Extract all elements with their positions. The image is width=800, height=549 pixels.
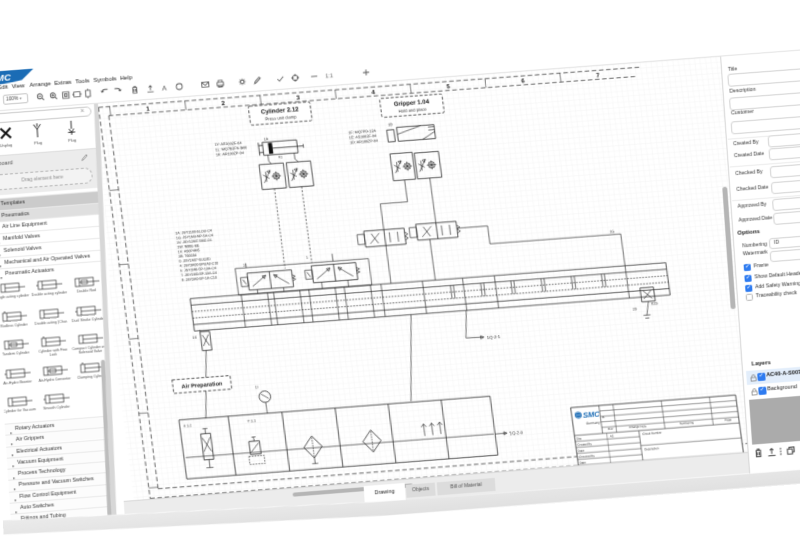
svg-text:Rev: Rev (608, 427, 614, 431)
svg-text:Site: Site (576, 437, 582, 441)
svg-text:A: A (162, 85, 167, 92)
svg-text:Y 2.1: Y 2.1 (247, 419, 256, 424)
svg-text:X1: X1 (278, 155, 283, 159)
svg-text:3 1.2: 3 1.2 (183, 424, 192, 429)
svg-text:1Q-2-0: 1Q-2-0 (509, 430, 524, 436)
svg-text:1G: 1G (610, 229, 616, 233)
svg-text:X2S: X2S (651, 301, 659, 306)
svg-text:SMC: SMC (582, 410, 600, 420)
svg-text:1Q-2-1: 1Q-2-1 (487, 334, 502, 340)
svg-text:1I: 1I (255, 385, 259, 389)
svg-text:2: 2 (243, 263, 246, 267)
svg-text:Date: Date (578, 448, 585, 452)
svg-text:1: 1 (306, 256, 309, 260)
svg-text:1:1: 1:1 (325, 73, 333, 80)
svg-text:Page: Page (724, 417, 732, 421)
